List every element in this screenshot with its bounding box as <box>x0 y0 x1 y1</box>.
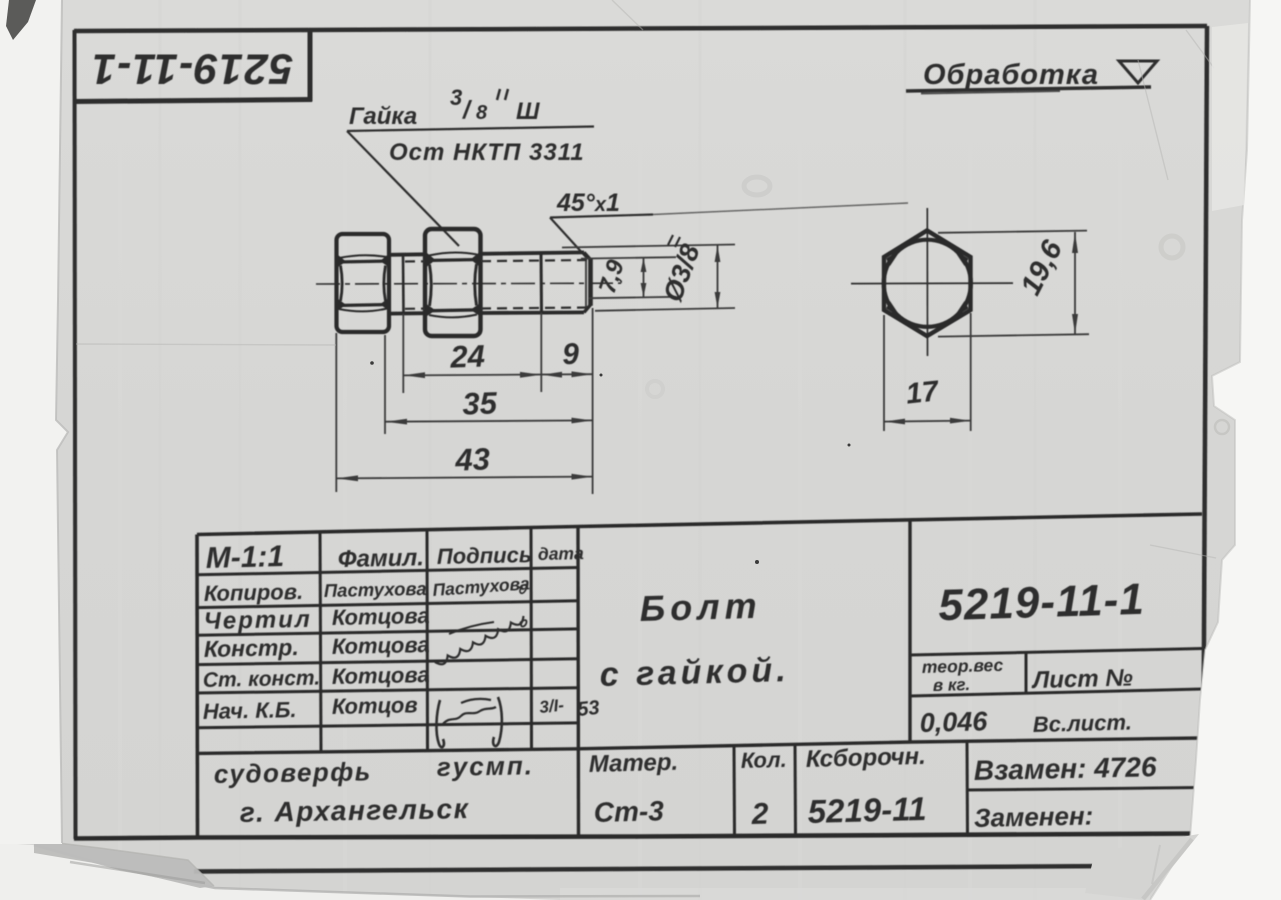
svg-text:9: 9 <box>562 338 580 372</box>
svg-text:Пастухова: Пастухова <box>324 578 427 601</box>
svg-text:в кг.: в кг. <box>933 675 971 695</box>
svg-text:Ш: Ш <box>516 98 540 125</box>
svg-text:Котцова: Котцова <box>332 662 430 689</box>
svg-text:Констр.: Констр. <box>204 634 299 662</box>
svg-text:Вс.лист.: Вс.лист. <box>1032 709 1132 737</box>
svg-text:Гайка: Гайка <box>349 103 417 130</box>
svg-text:Взамен: 4726: Взамен: 4726 <box>974 751 1158 786</box>
svg-text:Лист №: Лист № <box>1030 664 1133 694</box>
svg-text:Нач. К.Б.: Нач. К.Б. <box>203 697 297 724</box>
svg-text:Ост НКТП 3311: Ост НКТП 3311 <box>389 139 585 166</box>
svg-text:Заменен:: Заменен: <box>974 801 1094 833</box>
svg-text:гусмп.: гусмп. <box>437 750 535 782</box>
svg-text:с гайкой.: с гайкой. <box>599 651 790 694</box>
svg-text:теор.вес: теор.вес <box>922 655 1004 677</box>
svg-text:М-1:1: М-1:1 <box>205 540 284 575</box>
svg-text:Матер.: Матер. <box>588 749 678 778</box>
svg-text:5219-11-1: 5219-11-1 <box>91 45 293 93</box>
svg-text:17: 17 <box>904 375 941 410</box>
svg-text:Копиров.: Копиров. <box>204 579 304 606</box>
svg-text:Кол.: Кол. <box>740 747 787 773</box>
svg-text:г. Архангельск: г. Архангельск <box>240 793 470 828</box>
svg-text:Болт: Болт <box>639 585 762 629</box>
svg-text:Чертил: Чертил <box>204 606 312 635</box>
svg-text:Ст. конст.: Ст. конст. <box>203 667 321 692</box>
svg-text:8: 8 <box>476 102 488 124</box>
svg-text:судоверфь: судоверфь <box>214 756 372 789</box>
svg-text:5219-11: 5219-11 <box>807 790 927 830</box>
svg-text:дата: дата <box>538 543 585 564</box>
svg-text:5219-11-1: 5219-11-1 <box>938 575 1146 630</box>
svg-text:Котцова: Котцова <box>332 603 430 630</box>
svg-text:35: 35 <box>462 385 498 421</box>
svg-text:Фамил.: Фамил. <box>338 544 425 573</box>
svg-text:2: 2 <box>750 798 769 831</box>
svg-text:3: 3 <box>450 85 462 110</box>
svg-text:Ксборочн.: Ксборочн. <box>805 743 926 773</box>
svg-text:Котцов: Котцов <box>332 692 418 719</box>
svg-text:Ст-3: Ст-3 <box>593 795 664 828</box>
svg-text:Подпись: Подпись <box>437 542 533 569</box>
svg-text:0,046: 0,046 <box>919 706 988 738</box>
svg-text:45°x1: 45°x1 <box>556 189 620 217</box>
svg-text:Котцова: Котцова <box>332 632 430 659</box>
svg-text:53: 53 <box>576 697 600 721</box>
svg-text:24: 24 <box>449 338 486 374</box>
svg-text:43: 43 <box>454 441 491 477</box>
svg-text:3/I-: 3/I- <box>538 695 565 716</box>
svg-text:Обработка: Обработка <box>923 59 1099 91</box>
